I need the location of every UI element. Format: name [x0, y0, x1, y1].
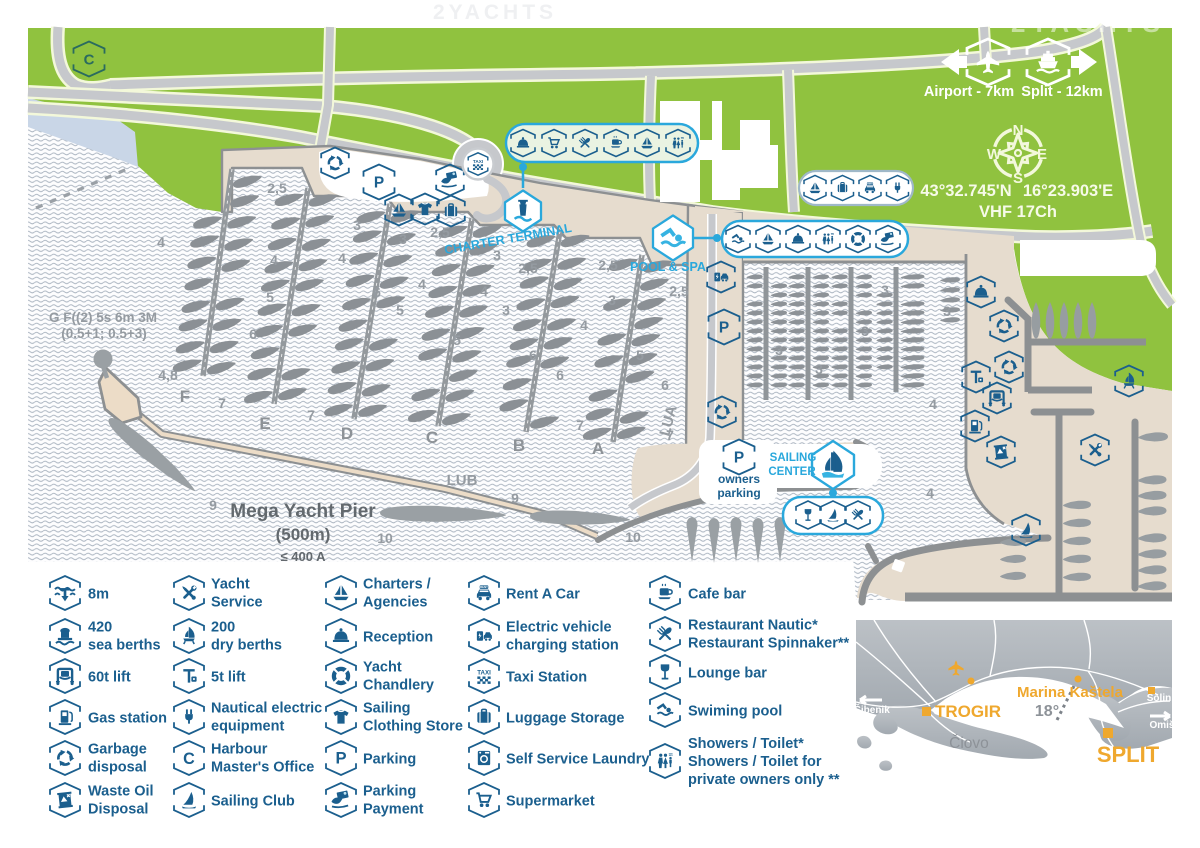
- svg-text:Nautical electric: Nautical electric: [211, 701, 322, 717]
- svg-text:Master's Office: Master's Office: [211, 760, 314, 776]
- svg-text:4: 4: [270, 252, 278, 268]
- svg-text:Split - 12km: Split - 12km: [1021, 84, 1102, 100]
- svg-text:SPLIT: SPLIT: [1097, 742, 1160, 767]
- svg-text:Reception: Reception: [363, 630, 433, 646]
- svg-text:G F((2) 5s 6m 3M: G F((2) 5s 6m 3M: [49, 310, 157, 325]
- svg-text:Čiovo: Čiovo: [949, 735, 989, 752]
- svg-text:3: 3: [943, 303, 951, 319]
- svg-text:Swiming pool: Swiming pool: [688, 704, 782, 720]
- svg-text:200: 200: [211, 620, 235, 636]
- svg-text:RENT: RENT: [867, 183, 873, 185]
- svg-text:8m: 8m: [88, 587, 109, 603]
- svg-text:9: 9: [511, 490, 519, 506]
- svg-text:5: 5: [636, 347, 644, 363]
- svg-text:4: 4: [480, 283, 488, 299]
- svg-text:D: D: [341, 424, 353, 443]
- svg-text:Disposal: Disposal: [88, 802, 148, 818]
- svg-text:P: P: [335, 749, 346, 768]
- svg-text:2,5: 2,5: [430, 224, 450, 240]
- svg-text:(0.5+1; 0.5+3): (0.5+1; 0.5+3): [61, 326, 147, 341]
- svg-text:Waste Oil: Waste Oil: [88, 784, 154, 800]
- svg-text:6: 6: [529, 347, 537, 363]
- svg-text:10: 10: [377, 530, 393, 546]
- svg-text:Gas station: Gas station: [88, 711, 167, 727]
- svg-text:Taxi Station: Taxi Station: [506, 670, 587, 686]
- svg-text:Mega Yacht Pier: Mega Yacht Pier: [230, 501, 376, 522]
- svg-text:C: C: [183, 750, 195, 768]
- svg-text:CENTER: CENTER: [768, 466, 816, 478]
- svg-text:RENT: RENT: [480, 585, 488, 589]
- svg-text:Showers / Toilet for: Showers / Toilet for: [688, 754, 822, 770]
- svg-text:Supermarket: Supermarket: [506, 794, 595, 810]
- svg-text:3: 3: [815, 361, 823, 377]
- svg-text:S: S: [1013, 170, 1023, 187]
- svg-text:LUB: LUB: [447, 472, 478, 489]
- svg-text:Rent A Car: Rent A Car: [506, 587, 580, 603]
- svg-text:Restaurant Nautic*: Restaurant Nautic*: [688, 618, 818, 634]
- svg-text:Charters /: Charters /: [363, 577, 431, 593]
- svg-text:Yacht: Yacht: [211, 577, 250, 593]
- svg-text:parking: parking: [717, 486, 760, 500]
- svg-text:3: 3: [861, 323, 869, 339]
- svg-text:F: F: [180, 387, 190, 406]
- svg-text:Lounge bar: Lounge bar: [688, 666, 767, 682]
- svg-text:Sailing: Sailing: [363, 701, 411, 717]
- svg-text:Service: Service: [211, 595, 263, 611]
- svg-text:5: 5: [266, 289, 274, 305]
- svg-text:2YACHTS: 2YACHTS: [433, 1, 557, 24]
- svg-text:Payment: Payment: [363, 802, 424, 818]
- svg-text:SAILING: SAILING: [770, 452, 817, 464]
- svg-text:C: C: [84, 51, 95, 68]
- svg-text:A: A: [592, 439, 604, 458]
- svg-text:10: 10: [625, 529, 641, 545]
- svg-text:dry berths: dry berths: [211, 638, 282, 654]
- svg-text:5: 5: [396, 302, 404, 318]
- svg-text:3: 3: [881, 282, 889, 298]
- svg-text:Cafe bar: Cafe bar: [688, 587, 746, 603]
- svg-text:P: P: [734, 449, 744, 466]
- svg-text:sea berths: sea berths: [88, 638, 161, 654]
- svg-text:6: 6: [373, 284, 381, 300]
- svg-text:7: 7: [307, 407, 315, 423]
- svg-text:Parking: Parking: [363, 752, 416, 768]
- svg-text:4: 4: [157, 234, 165, 250]
- svg-text:6: 6: [556, 367, 564, 383]
- svg-text:3: 3: [353, 217, 361, 233]
- svg-text:POOL & SPA: POOL & SPA: [630, 260, 706, 274]
- svg-text:Electric vehicle: Electric vehicle: [506, 620, 612, 636]
- svg-text:4: 4: [418, 276, 426, 292]
- svg-text:6: 6: [661, 377, 669, 393]
- svg-text:Showers / Toilet*: Showers / Toilet*: [688, 736, 804, 752]
- svg-text:3: 3: [399, 231, 407, 247]
- svg-text:P: P: [374, 174, 384, 191]
- svg-text:Solin: Solin: [1147, 693, 1171, 704]
- svg-text:Restaurant Spinnaker**: Restaurant Spinnaker**: [688, 636, 850, 652]
- svg-text:2,5: 2,5: [598, 257, 618, 273]
- svg-text:2,5: 2,5: [267, 180, 287, 196]
- svg-text:7: 7: [576, 417, 584, 433]
- svg-text:owners: owners: [718, 472, 760, 486]
- svg-text:Sailing Club: Sailing Club: [211, 794, 295, 810]
- svg-text:charging station: charging station: [506, 638, 619, 654]
- svg-text:TAXI: TAXI: [477, 670, 491, 677]
- svg-text:VHF 17Ch: VHF 17Ch: [979, 203, 1057, 221]
- svg-text:60t lift: 60t lift: [88, 670, 131, 686]
- svg-text:private owners only **: private owners only **: [688, 772, 840, 788]
- svg-text:Harbour: Harbour: [211, 742, 268, 758]
- svg-text:16°23.903'E: 16°23.903'E: [1023, 182, 1113, 200]
- svg-text:TROGIR: TROGIR: [935, 702, 1001, 721]
- svg-text:Marina Kaštela: Marina Kaštela: [1017, 684, 1124, 701]
- svg-text:Omiš: Omiš: [1149, 720, 1174, 731]
- svg-text:3: 3: [608, 292, 616, 308]
- svg-text:Luggage Storage: Luggage Storage: [506, 711, 624, 727]
- svg-text:3: 3: [502, 302, 510, 318]
- svg-text:5t lift: 5t lift: [211, 670, 246, 686]
- svg-text:P: P: [719, 319, 729, 336]
- svg-text:Self Service Laundry: Self Service Laundry: [506, 752, 649, 768]
- svg-text:TAXI: TAXI: [473, 159, 483, 164]
- svg-text:5: 5: [453, 332, 461, 348]
- svg-text:Šibenik: Šibenik: [854, 703, 890, 716]
- svg-text:C: C: [426, 428, 438, 447]
- svg-text:4: 4: [926, 485, 934, 501]
- svg-text:2YACHTS: 2YACHTS: [1011, 8, 1165, 38]
- svg-text:3: 3: [493, 247, 501, 263]
- svg-text:Airport - 7km: Airport - 7km: [924, 84, 1014, 100]
- svg-text:18°: 18°: [1035, 703, 1059, 720]
- svg-text:E: E: [1037, 146, 1047, 163]
- svg-text:43°32.745'N: 43°32.745'N: [920, 182, 1011, 200]
- svg-text:(500m): (500m): [276, 525, 331, 544]
- svg-text:W: W: [987, 146, 1002, 163]
- svg-text:Garbage: Garbage: [88, 742, 147, 758]
- svg-text:E: E: [259, 414, 270, 433]
- svg-text:7: 7: [218, 395, 226, 411]
- svg-text:2,5: 2,5: [669, 283, 689, 299]
- svg-text:3: 3: [775, 342, 783, 358]
- svg-text:Agencies: Agencies: [363, 595, 427, 611]
- svg-text:4: 4: [580, 317, 588, 333]
- svg-text:420: 420: [88, 620, 112, 636]
- svg-text:disposal: disposal: [88, 760, 147, 776]
- svg-text:9: 9: [209, 497, 217, 513]
- svg-text:≤ 400 A: ≤ 400 A: [281, 549, 327, 564]
- svg-text:Yacht: Yacht: [363, 660, 402, 676]
- svg-text:equipment: equipment: [211, 719, 284, 735]
- svg-text:4,8: 4,8: [158, 367, 178, 383]
- svg-text:4: 4: [338, 250, 346, 266]
- svg-text:Parking: Parking: [363, 784, 416, 800]
- svg-text:4: 4: [929, 396, 937, 412]
- svg-text:2,5: 2,5: [518, 260, 538, 276]
- svg-text:Clothing Store: Clothing Store: [363, 719, 463, 735]
- svg-text:Chandlery: Chandlery: [363, 678, 434, 694]
- svg-text:N: N: [1013, 122, 1024, 139]
- svg-text:B: B: [513, 436, 525, 455]
- svg-text:6: 6: [249, 326, 257, 342]
